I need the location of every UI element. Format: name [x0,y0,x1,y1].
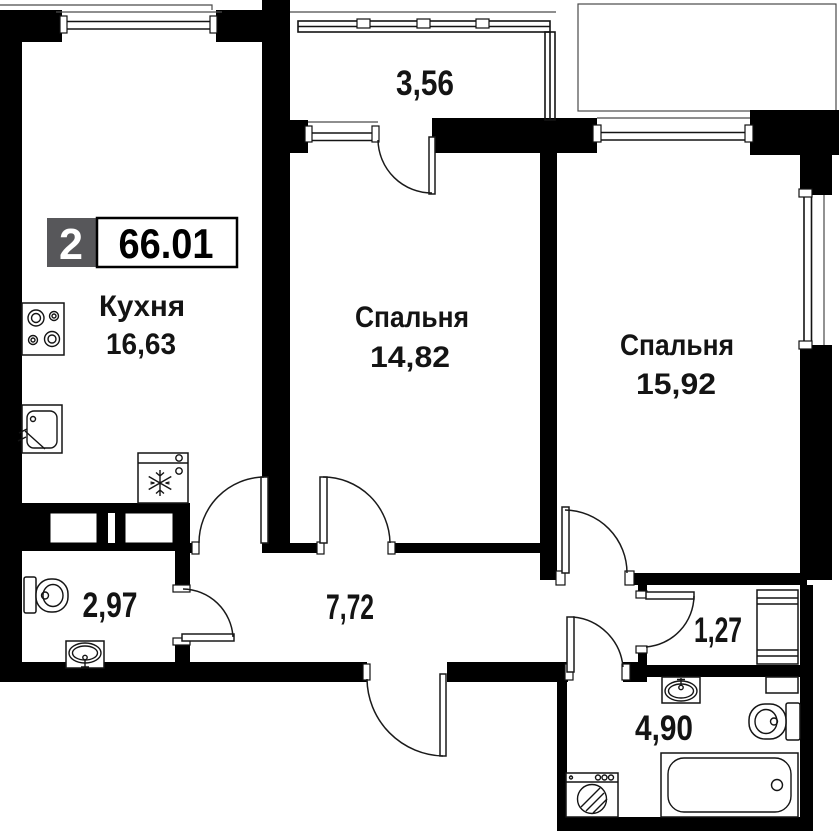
badge-total-area: 66.01 [119,220,214,267]
fridge-icon [138,453,188,503]
balcony-area: 3,56 [396,64,454,103]
washing-machine-icon [566,773,618,817]
storage-area: 1,27 [694,611,742,650]
bath-washbasin-icon [662,677,700,703]
floor-plan: Кухня 16,63 Спальня 14,82 Спальня 15,92 … [0,0,839,831]
storage-door [636,591,694,653]
vent-duct [50,513,97,543]
bedroom2-top-window [593,118,753,142]
wc-door [173,585,234,645]
bathroom-area: 4,90 [635,709,693,748]
walls [0,0,839,831]
kitchen-label: Кухня [99,290,185,323]
bedroom1-area: 14,82 [370,341,450,374]
neighbor-balcony-outline [578,4,836,111]
water-heater-icon [766,677,798,693]
entrance-door [363,664,446,756]
hallway-area: 7,72 [326,588,374,627]
bedroom1-balcony-window [305,122,379,142]
wc-area: 2,97 [83,586,138,625]
bedroom2-right-window [799,189,824,349]
bedroom1-label: Спальня [355,301,469,334]
kitchen-door [192,477,268,554]
vent-duct [108,513,115,543]
vent-duct [125,513,173,543]
bathroom-door [565,617,630,680]
floor-plan-svg: Кухня 16,63 Спальня 14,82 Спальня 15,92 … [0,0,839,831]
balcony-door [378,137,435,194]
bedroom2-area: 15,92 [636,368,716,401]
kitchen-sink-icon [18,405,62,453]
wardrobe-icon [757,590,798,664]
bedroom2-label: Спальня [620,329,734,362]
badge-room-count: 2 [59,220,83,269]
area-badge: 2 66.01 [47,218,237,269]
bedroom2-door [556,507,634,585]
bath-toilet-icon [749,703,800,740]
bathtub-icon [661,753,798,817]
kitchen-window [56,12,222,33]
wc-toilet-icon [24,577,68,613]
wc-washbasin-icon [66,641,104,668]
kitchen-area: 16,63 [106,328,176,361]
stove-icon [22,303,64,355]
bedroom1-door [317,477,395,554]
